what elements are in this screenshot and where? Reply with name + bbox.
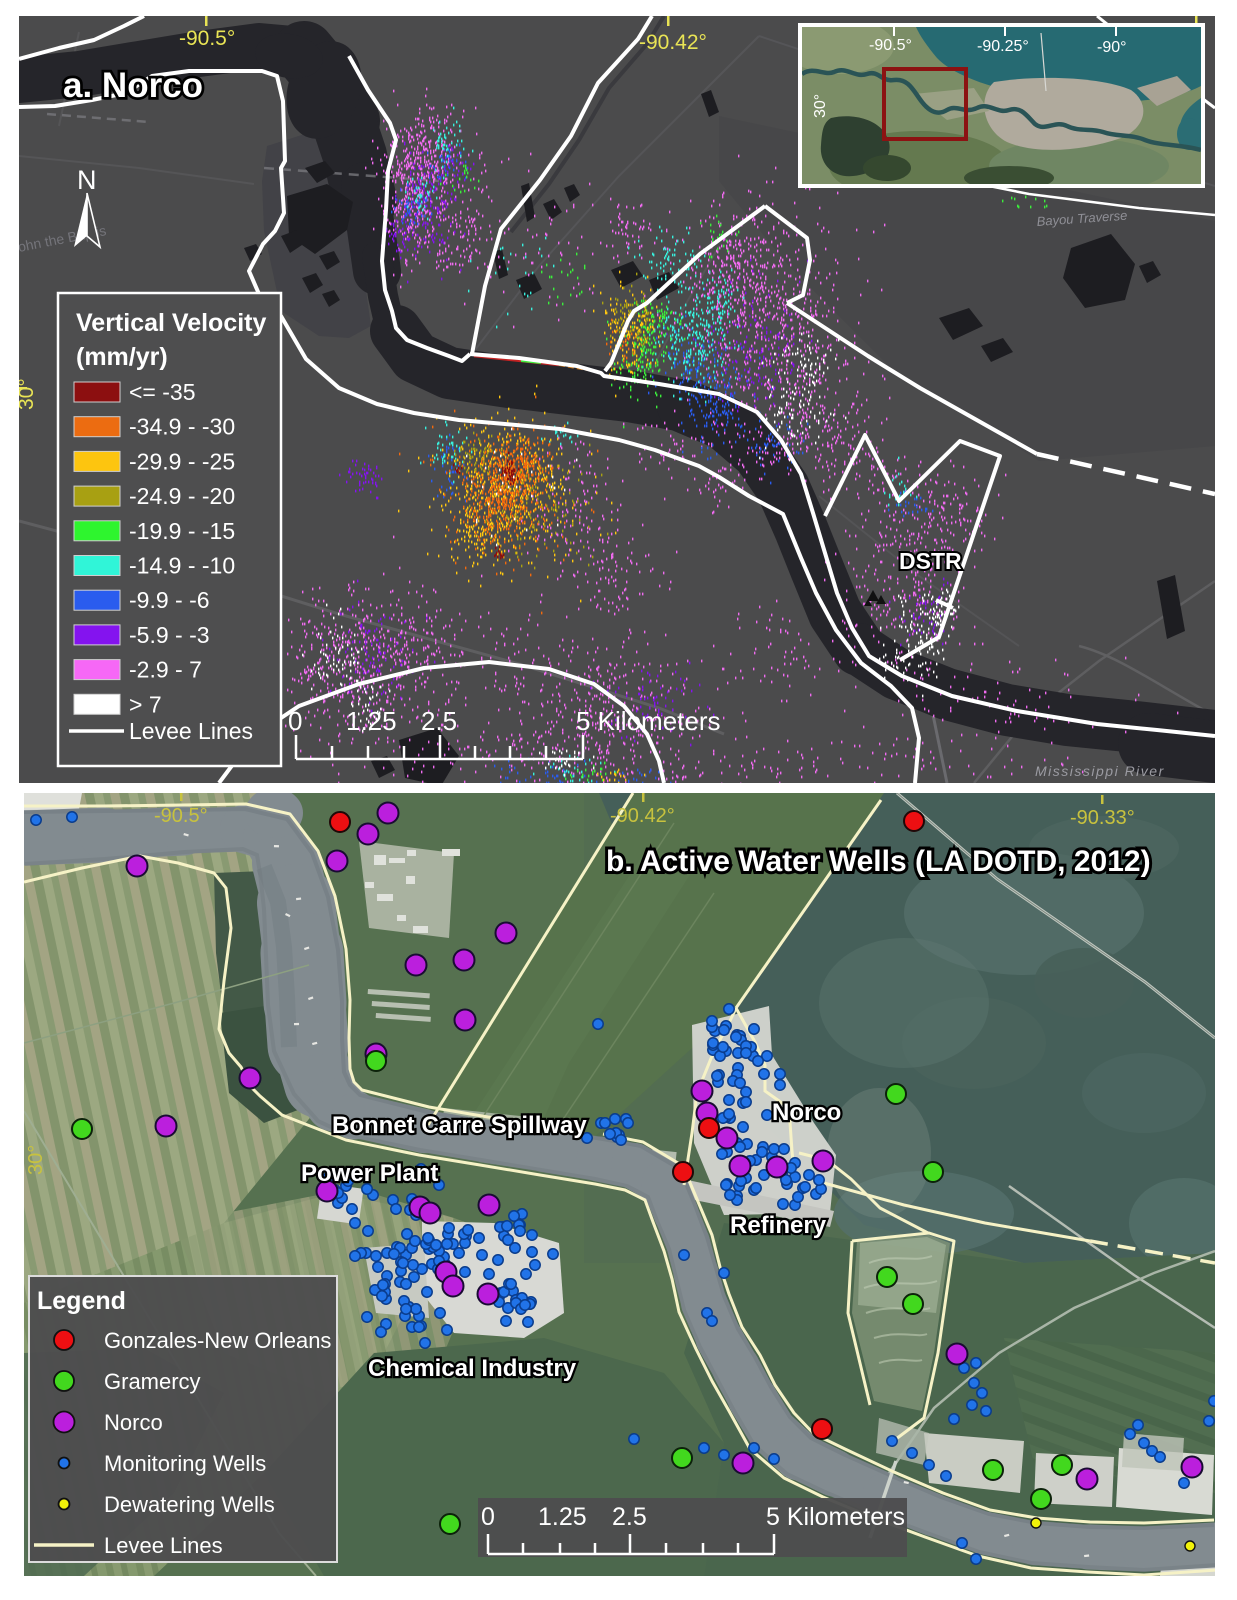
svg-text:Bonnet Carre Spillway: Bonnet Carre Spillway (332, 1112, 587, 1139)
svg-text:Vertical Velocity: Vertical Velocity (76, 309, 266, 337)
svg-text:Norco: Norco (104, 1410, 163, 1435)
svg-text:Legend: Legend (37, 1287, 126, 1315)
svg-text:Gonzales-New Orleans: Gonzales-New Orleans (104, 1328, 331, 1353)
svg-text:-90.42°: -90.42° (639, 31, 707, 54)
svg-text:<= -35: <= -35 (129, 379, 196, 405)
svg-text:a. Norco: a. Norco (63, 66, 203, 105)
svg-text:2.5: 2.5 (421, 706, 457, 736)
svg-text:Norco: Norco (772, 1099, 841, 1126)
svg-text:Chemical Industry: Chemical Industry (368, 1355, 577, 1382)
svg-text:30°: 30° (812, 94, 829, 118)
svg-text:Levee Lines: Levee Lines (104, 1533, 223, 1558)
svg-text:-19.9 - -15: -19.9 - -15 (129, 518, 235, 544)
svg-text:-90.25°: -90.25° (977, 38, 1029, 55)
svg-text:-90.5°: -90.5° (179, 27, 235, 50)
svg-text:0: 0 (288, 706, 302, 736)
svg-text:2.5: 2.5 (612, 1503, 647, 1531)
svg-text:-34.9 - -30: -34.9 - -30 (129, 414, 235, 440)
svg-text:Levee Lines: Levee Lines (129, 718, 253, 744)
svg-text:-9.9 - -6: -9.9 - -6 (129, 587, 210, 613)
svg-text:Dewatering Wells: Dewatering Wells (104, 1492, 275, 1517)
svg-text:-2.9 - 7: -2.9 - 7 (129, 657, 202, 683)
svg-text:Monitoring Wells: Monitoring Wells (104, 1451, 266, 1476)
svg-text:Gramercy: Gramercy (104, 1369, 201, 1394)
svg-text:b. Active Water Wells (LA DOTD: b. Active Water Wells (LA DOTD, 2012) (606, 845, 1151, 878)
svg-text:30°: 30° (25, 1145, 47, 1175)
svg-text:1.25: 1.25 (538, 1503, 587, 1531)
svg-text:(mm/yr): (mm/yr) (76, 343, 168, 371)
svg-text:0: 0 (481, 1503, 495, 1531)
svg-text:N: N (77, 165, 97, 195)
svg-text:Mississippi River: Mississippi River (1035, 763, 1165, 779)
svg-text:-29.9 - -25: -29.9 - -25 (129, 448, 235, 474)
svg-text:DSTR: DSTR (899, 548, 962, 574)
svg-text:-90.33°: -90.33° (1070, 807, 1135, 829)
svg-text:-90.5°: -90.5° (154, 805, 208, 827)
svg-text:5 Kilometers: 5 Kilometers (766, 1503, 905, 1531)
svg-text:Refinery: Refinery (730, 1212, 827, 1239)
svg-text:-24.9 - -20: -24.9 - -20 (129, 483, 235, 509)
svg-text:-90.5°: -90.5° (869, 37, 912, 54)
svg-text:> 7: > 7 (129, 691, 162, 717)
svg-text:-90°: -90° (1097, 39, 1127, 56)
svg-text:1.25: 1.25 (346, 706, 397, 736)
svg-text:5 Kilometers: 5 Kilometers (576, 706, 721, 736)
svg-text:-5.9 - -3: -5.9 - -3 (129, 622, 210, 648)
svg-text:Power Plant: Power Plant (301, 1160, 438, 1187)
svg-text:-14.9 - -10: -14.9 - -10 (129, 553, 235, 579)
svg-text:-90.42°: -90.42° (610, 805, 675, 827)
svg-text:30°: 30° (19, 378, 38, 410)
